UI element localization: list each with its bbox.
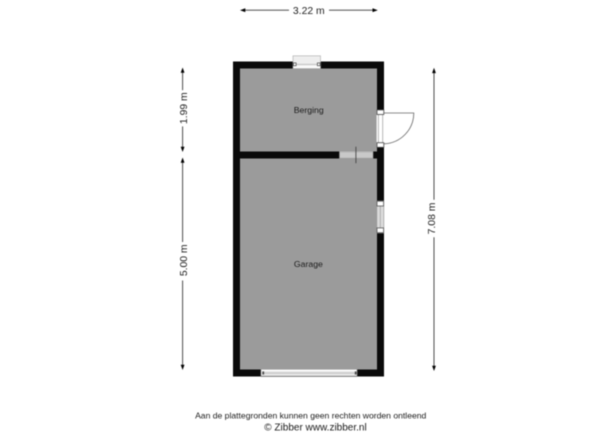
svg-text:1.99 m: 1.99 m (179, 92, 190, 124)
svg-text:7.08 m: 7.08 m (427, 203, 438, 235)
svg-text:© Zibber www.zibber.nl: © Zibber www.zibber.nl (264, 423, 366, 434)
svg-text:5.00 m: 5.00 m (179, 244, 190, 276)
svg-text:Aan de plattegronden kunnen ge: Aan de plattegronden kunnen geen rechten… (195, 410, 426, 420)
svg-text:Garage: Garage (294, 259, 323, 269)
svg-text:Berging: Berging (294, 105, 324, 115)
svg-text:3.22 m: 3.22 m (293, 6, 325, 17)
